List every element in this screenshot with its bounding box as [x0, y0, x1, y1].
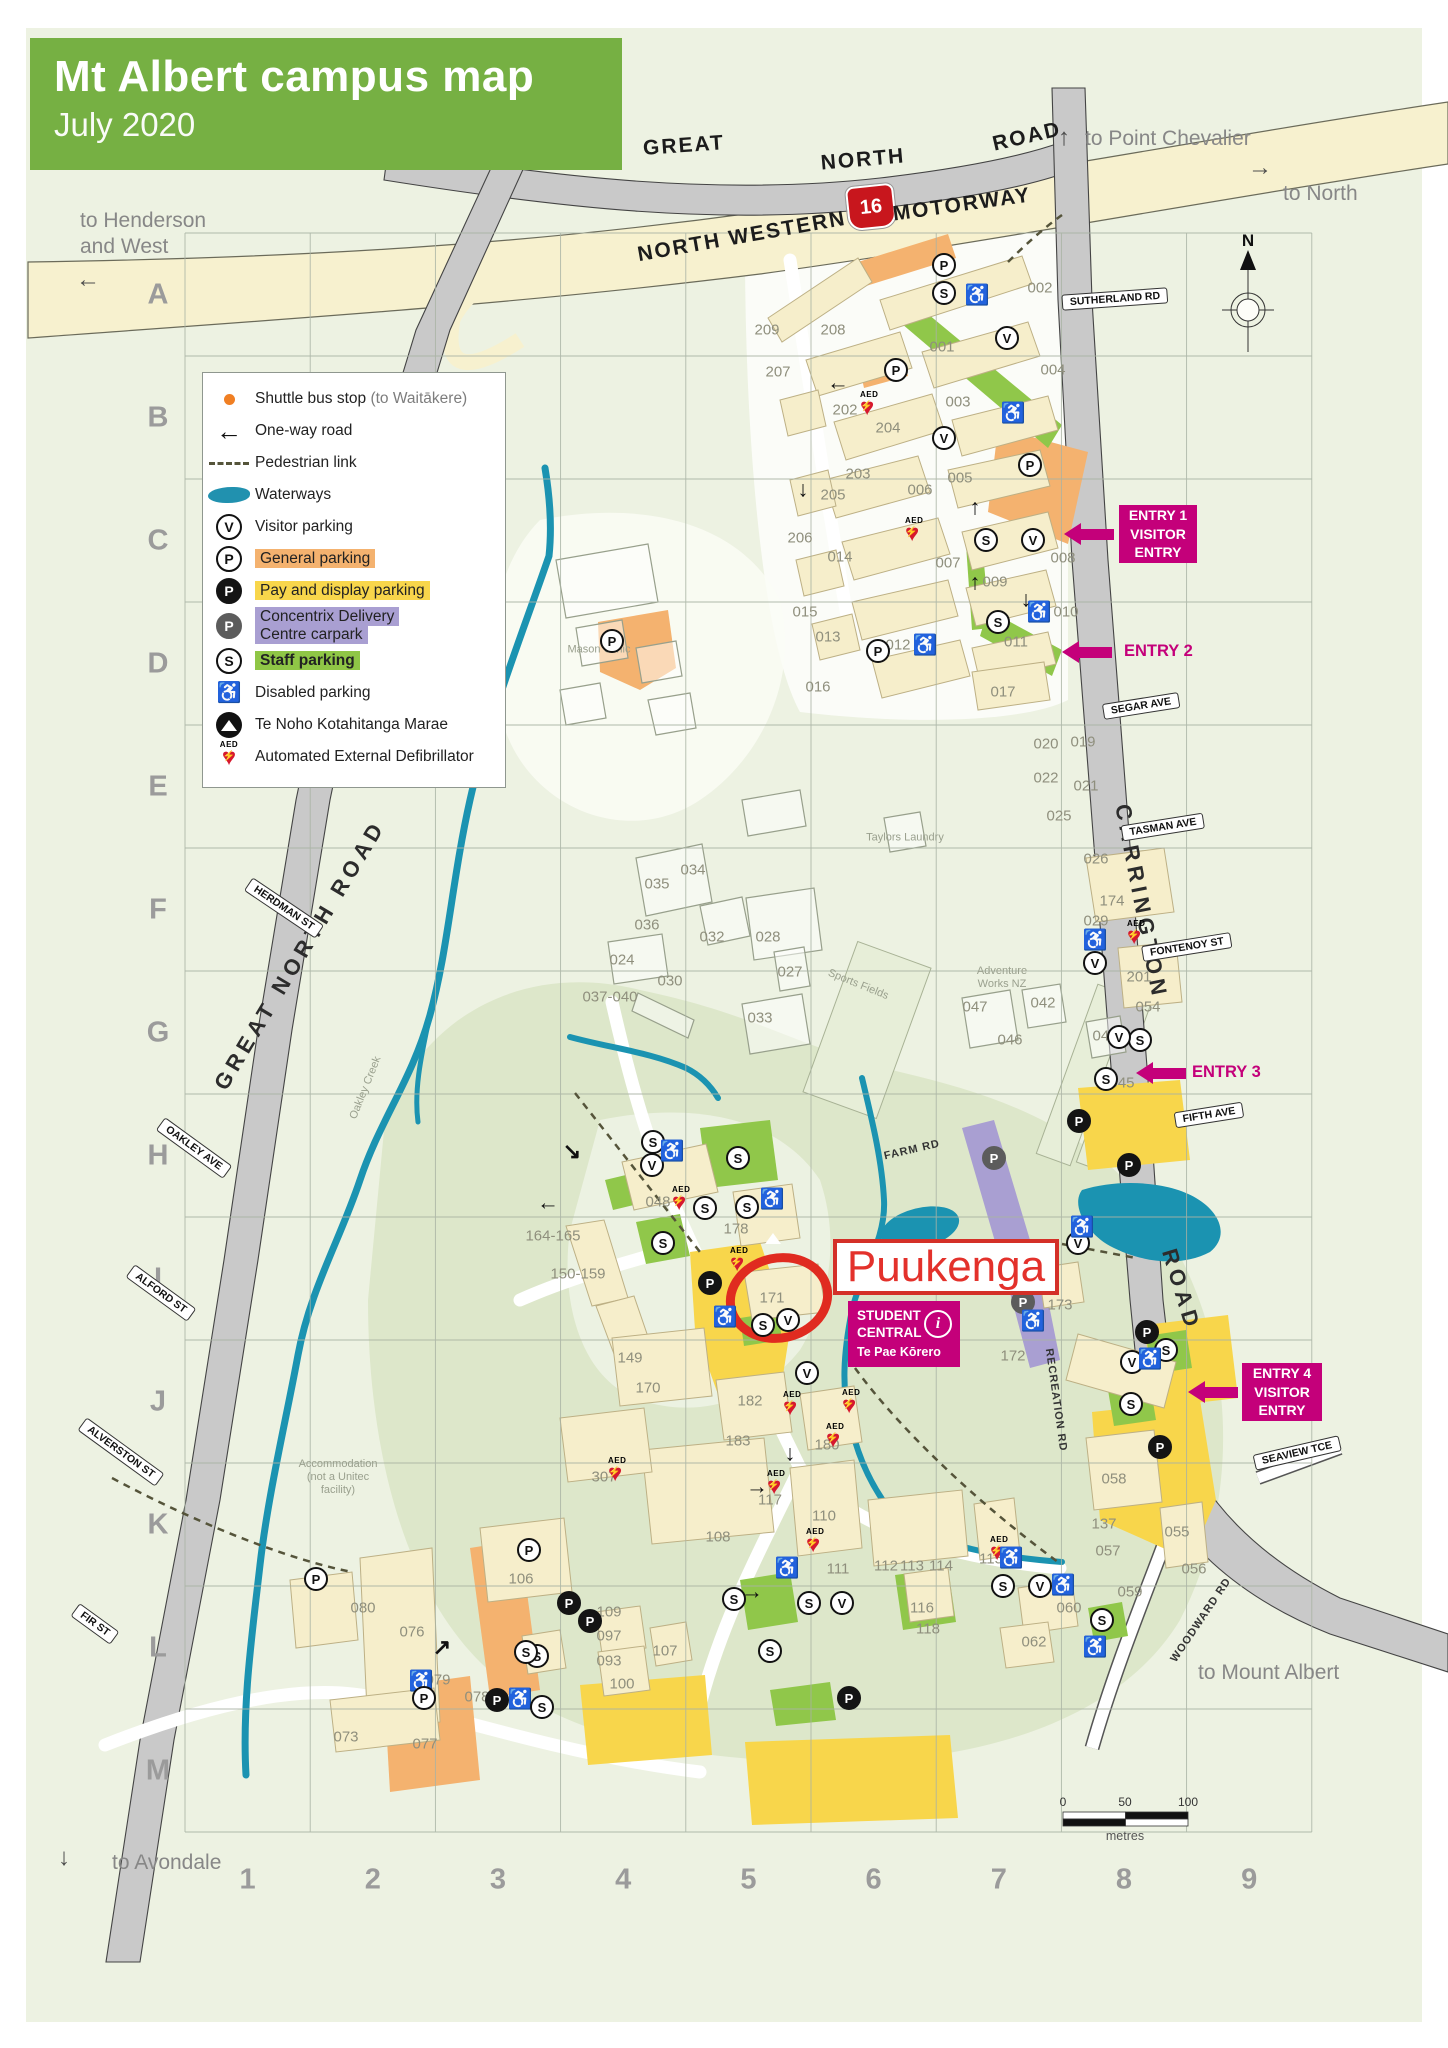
building-label: 002 [1027, 280, 1052, 297]
building-label: 110 [812, 1508, 836, 1525]
building-label: 017 [990, 684, 1015, 701]
v-icon: V [1083, 951, 1107, 975]
pb-icon: P [837, 1686, 861, 1710]
building-label: 008 [1050, 550, 1075, 567]
dis-icon: ♿ [1083, 1638, 1108, 1659]
building-label: 033 [747, 1010, 772, 1027]
v-icon: V [1028, 1574, 1052, 1598]
building-label: 030 [657, 973, 682, 990]
pb-icon: P [578, 1609, 602, 1633]
grid-col-label: 3 [490, 1864, 506, 1897]
direction-label: to North [1283, 181, 1358, 207]
pb-icon: P [837, 1686, 861, 1710]
dis-icon: ♿ [965, 285, 990, 307]
building-label: 073 [333, 1729, 358, 1746]
s-icon: S [216, 648, 242, 674]
legend-item-label: Visitor parking [255, 518, 353, 536]
v-icon: V [776, 1308, 800, 1332]
dis-icon: ♿ [1051, 1576, 1076, 1597]
building-label: 182 [737, 1393, 762, 1410]
p-icon: P [600, 629, 624, 653]
p-icon: P [517, 1538, 541, 1562]
s-icon: S [735, 1195, 759, 1219]
ped-icon [209, 462, 249, 465]
arr-icon: ↘ [563, 1141, 581, 1164]
direction-label: to Mount Albert [1198, 1660, 1339, 1686]
p-icon: P [866, 639, 890, 663]
compass-n: N [1242, 231, 1254, 250]
building-label: 024 [609, 952, 634, 969]
map-header: Mt Albert campus map July 2020 [30, 38, 622, 170]
building-label: 042 [1030, 995, 1055, 1012]
s-icon: S [514, 1640, 538, 1664]
p-icon: P [304, 1567, 328, 1591]
campus-map-page: N 0 50 100 metres Mt Albert campus map J… [0, 0, 1448, 2048]
s-icon: S [1128, 1028, 1152, 1052]
s-icon: S [514, 1640, 538, 1664]
water-icon [208, 487, 250, 503]
arr-icon: ← [537, 1192, 559, 1215]
legend-item: Te Noho Kotahitanga Marae [203, 709, 505, 741]
v-icon: V [1083, 951, 1107, 975]
building-label: 164-165 [525, 1228, 580, 1245]
s-icon: S [726, 1146, 750, 1170]
v-icon: V [995, 326, 1019, 350]
s-icon: S [1090, 1608, 1114, 1632]
dis-icon: ♿ [1070, 1218, 1095, 1239]
dis-icon: ♿ [760, 1189, 785, 1211]
dis-icon: ♿ [913, 635, 938, 657]
dis-icon: ♿ [508, 1689, 533, 1711]
building-label: 059 [1117, 1584, 1142, 1601]
v-icon: V [1028, 1574, 1052, 1598]
student-central-line3: Te Pae Kōrero [857, 1345, 960, 1359]
building-label: 035 [644, 876, 669, 893]
grid-row-label: J [150, 1385, 166, 1418]
direction-arrow-icon: ↓ [58, 1846, 70, 1870]
s-icon: S [932, 281, 956, 305]
v-icon: V [216, 514, 242, 540]
legend-item-label: Te Noho Kotahitanga Marae [255, 716, 448, 734]
arr-icon: ↑ [970, 497, 981, 520]
v-icon: V [795, 1361, 819, 1385]
grid-row-label: B [148, 401, 169, 434]
s-icon: S [726, 1146, 750, 1170]
building-label: 183 [725, 1433, 750, 1450]
building-label: 113 [900, 1558, 924, 1575]
dis-icon: ♿ [913, 636, 938, 657]
dis-icon: ♿ [775, 1558, 800, 1580]
building-label: 019 [1070, 734, 1095, 751]
building-label: 201 [1126, 969, 1151, 986]
building-label: 028 [755, 929, 780, 946]
p-icon: P [884, 358, 908, 382]
building-label: 015 [792, 604, 817, 621]
building-label: 093 [596, 1653, 621, 1670]
v-icon: V [1107, 1025, 1131, 1049]
dis-icon: ♿ [1021, 1312, 1046, 1333]
arr-icon: ↓ [785, 1443, 796, 1466]
building-label: 170 [635, 1380, 660, 1397]
direction-label: to Avondale [112, 1850, 221, 1876]
building-label: 150-159 [550, 1266, 605, 1283]
grid-row-label: M [146, 1754, 170, 1787]
grid-row-label: D [148, 647, 169, 680]
pb-icon: P [1067, 1109, 1091, 1133]
v-icon: V [1021, 528, 1045, 552]
pb-icon: P [1117, 1153, 1141, 1177]
direction-arrow-icon: ↑ [1058, 126, 1070, 150]
dis-icon: ♿ [1051, 1575, 1076, 1597]
s-icon: S [651, 1231, 675, 1255]
grid-row-label: K [148, 1508, 169, 1541]
legend-item-label: Automated External Defibrillator [255, 748, 474, 766]
p-icon: P [866, 639, 890, 663]
legend-item: ♿Disabled parking [203, 677, 505, 709]
building-label: 173 [1047, 1297, 1072, 1314]
s-icon: S [991, 1574, 1015, 1598]
dis-icon: ♿ [775, 1559, 800, 1580]
grid-col-label: 8 [1116, 1864, 1132, 1897]
arr-icon: ↗ [433, 1637, 451, 1660]
arr-icon: ↑ [970, 572, 981, 595]
building-label: 076 [399, 1624, 424, 1641]
s-icon: S [986, 610, 1010, 634]
compass-rose: N [1222, 231, 1274, 352]
s-icon: S [758, 1639, 782, 1663]
p-icon: P [1018, 453, 1042, 477]
building-label: 020 [1033, 736, 1058, 753]
legend-item: PConcentrix DeliveryCentre carpark [203, 607, 505, 645]
legend-item-label: Disabled parking [255, 684, 370, 702]
page-subtitle: July 2020 [54, 106, 622, 144]
dis-icon: ♿ [760, 1190, 785, 1211]
building-label: 013 [815, 629, 840, 646]
legend-item: VVisitor parking [203, 511, 505, 543]
legend-item: PPay and display parking [203, 575, 505, 607]
building-label: 077 [412, 1736, 437, 1753]
legend-item-label: One-way road [255, 422, 352, 440]
building-label: 062 [1021, 1634, 1046, 1651]
scale-bar: 0 50 100 metres [1060, 1795, 1199, 1843]
legend-item: Shuttle bus stop (to Waitākere) [203, 383, 505, 415]
dis-icon: ♿ [1070, 1217, 1095, 1239]
s-icon: S [530, 1695, 554, 1719]
motorway-16-shield: 16 [845, 183, 897, 232]
building-label: 171 [759, 1290, 784, 1307]
pb-icon: P [485, 1688, 509, 1712]
legend-item-label: Pay and display parking [255, 582, 430, 600]
area-note: Taylors Laundry [866, 831, 944, 844]
v-icon: V [1107, 1025, 1131, 1049]
building-label: 174 [1099, 893, 1124, 910]
grid-row-label: F [149, 893, 167, 926]
direction-arrow-icon: ← [76, 268, 100, 292]
building-label: 206 [787, 530, 812, 547]
building-label: 100 [609, 1676, 634, 1693]
s-icon: S [735, 1195, 759, 1219]
building-label: 022 [1033, 770, 1058, 787]
grid-row-label: H [148, 1139, 169, 1172]
area-note: AdventureWorks NZ [977, 965, 1027, 991]
p-icon: P [216, 546, 242, 572]
entry-box: ENTRY 1VISITORENTRY [1119, 505, 1197, 563]
building-label: 106 [508, 1571, 533, 1588]
building-label: 029 [1083, 913, 1108, 930]
building-label: 107 [652, 1643, 677, 1660]
v-icon: V [830, 1591, 854, 1615]
direction-arrow-icon: → [1248, 156, 1272, 180]
p-icon: P [1018, 453, 1042, 477]
dis-icon: ♿ [965, 286, 990, 307]
grid-col-label: 1 [240, 1864, 256, 1897]
map-artwork: N 0 50 100 metres [0, 0, 1448, 2048]
legend-item-label: Concentrix DeliveryCentre carpark [255, 608, 399, 644]
pb-icon: P [1148, 1435, 1172, 1459]
s-icon: S [1094, 1067, 1118, 1091]
building-label: 118 [916, 1621, 940, 1638]
building-label: 203 [845, 466, 870, 483]
arr-icon: → [746, 1476, 768, 1499]
building-label: 036 [634, 917, 659, 934]
building-label: 003 [945, 394, 970, 411]
pb-icon: P [1117, 1153, 1141, 1177]
grid-row-label: G [147, 1016, 170, 1049]
building-label: 011 [1004, 634, 1028, 651]
legend-item: SStaff parking [203, 645, 505, 677]
pb-icon: P [1148, 1435, 1172, 1459]
s-icon: S [1094, 1067, 1118, 1091]
pg-icon: P [982, 1146, 1006, 1170]
grid-col-label: 4 [615, 1864, 631, 1897]
grid-col-label: 6 [866, 1864, 882, 1897]
entry-label: ENTRY 2 [1124, 642, 1193, 661]
building-label: 032 [699, 929, 724, 946]
puukenga-callout: Puukenga [833, 1239, 1059, 1295]
building-label: 014 [827, 549, 852, 566]
building-label: 048 [645, 1194, 670, 1211]
svg-text:metres: metres [1106, 1829, 1144, 1843]
direction-label: to Point Chevalier [1085, 126, 1251, 152]
v-icon: V [932, 426, 956, 450]
arr-icon: ← [827, 372, 849, 395]
building-label: 116 [910, 1600, 934, 1617]
dis-icon: ♿ [660, 1141, 685, 1163]
legend-item-label: General parking [255, 550, 375, 568]
dis-icon: ♿ [1001, 403, 1026, 425]
building-label: 202 [832, 402, 857, 419]
s-icon: S [1119, 1392, 1143, 1416]
s-icon: S [751, 1313, 775, 1337]
dot-icon [224, 394, 235, 405]
dis-icon: ♿ [1083, 930, 1108, 952]
legend-item: Pedestrian link [203, 447, 505, 479]
building-label: 204 [875, 420, 900, 437]
oneway-icon: ← [216, 418, 242, 444]
dis-icon: ♿ [999, 1548, 1024, 1570]
dis-icon: ♿ [508, 1690, 533, 1711]
building-label: 111 [827, 1561, 850, 1578]
s-icon: S [986, 610, 1010, 634]
building-label: 010 [1053, 604, 1078, 621]
pb-icon: P [698, 1271, 722, 1295]
grid-row-label: A [148, 278, 169, 311]
building-label: 207 [765, 364, 790, 381]
building-label: 114 [929, 1558, 953, 1575]
p-icon: P [884, 358, 908, 382]
building-label: 009 [982, 574, 1007, 591]
building-label: 112 [874, 1558, 898, 1575]
building-label: 034 [680, 862, 705, 879]
entry-box: ENTRY 4VISITORENTRY [1242, 1363, 1322, 1421]
legend-item-label: Staff parking [255, 652, 360, 670]
p-icon: P [412, 1686, 436, 1710]
s-icon: S [1119, 1392, 1143, 1416]
legend-item-label: Shuttle bus stop (to Waitākere) [255, 390, 467, 408]
grid-col-label: 5 [740, 1864, 756, 1897]
v-icon: V [995, 326, 1019, 350]
building-label: 026 [1083, 851, 1108, 868]
building-label: 016 [805, 679, 830, 696]
grid-row-label: L [149, 1631, 167, 1664]
s-icon: S [797, 1591, 821, 1615]
legend-item: ←One-way road [203, 415, 505, 447]
marae-icon [216, 712, 242, 738]
p-icon: P [304, 1567, 328, 1591]
p-icon: P [517, 1538, 541, 1562]
building-label: 004 [1040, 362, 1065, 379]
area-note: Accommodation(not a Unitecfacility) [299, 1458, 378, 1498]
building-label: 021 [1073, 778, 1098, 795]
arr-icon: ↓ [1021, 589, 1032, 612]
dis-icon: ♿ [713, 1307, 738, 1329]
s-icon: S [530, 1695, 554, 1719]
v-icon: V [932, 426, 956, 450]
s-icon: S [693, 1196, 717, 1220]
entry-label: ENTRY 3 [1192, 1063, 1261, 1082]
building-label: 046 [997, 1032, 1022, 1049]
building-label: 056 [1181, 1561, 1206, 1578]
v-icon: V [830, 1591, 854, 1615]
s-icon: S [693, 1196, 717, 1220]
s-icon: S [974, 528, 998, 552]
pb-icon: P [578, 1609, 602, 1633]
svg-text:100: 100 [1178, 1795, 1198, 1809]
pb-icon: P [1067, 1109, 1091, 1133]
grid-col-label: 9 [1241, 1864, 1257, 1897]
building-label: 054 [1135, 999, 1160, 1016]
building-label: 209 [754, 322, 779, 339]
s-icon: S [1090, 1608, 1114, 1632]
building-label: 005 [947, 470, 972, 487]
direction-label: to Hendersonand West [80, 208, 206, 261]
dis-icon: ♿ [660, 1142, 685, 1163]
legend-item: PGeneral parking [203, 543, 505, 575]
dis-icon: ♿ [1138, 1350, 1163, 1371]
building-label: 027 [777, 964, 802, 981]
p-icon: P [412, 1686, 436, 1710]
grid-row-label: E [148, 770, 167, 803]
dis-icon: ♿ [1083, 931, 1108, 952]
building-label: 055 [1164, 1524, 1189, 1541]
information-icon: i [924, 1310, 952, 1338]
building-label: 060 [1056, 1600, 1081, 1617]
aed-icon: AED♥⚡ [216, 742, 242, 772]
pg-icon: P [216, 613, 242, 639]
s-icon: S [751, 1313, 775, 1337]
building-label: 149 [617, 1350, 642, 1367]
legend-item: AED♥⚡Automated External Defibrillator [203, 741, 505, 773]
s-icon: S [932, 281, 956, 305]
building-label: 001 [929, 339, 954, 356]
building-label: 037-040 [582, 989, 637, 1006]
building-label: 137 [1091, 1516, 1116, 1533]
building-label: 172 [1000, 1348, 1025, 1365]
v-icon: V [776, 1308, 800, 1332]
building-label: 108 [705, 1529, 730, 1546]
grid-col-label: 7 [991, 1864, 1007, 1897]
s-icon: S [1128, 1028, 1152, 1052]
svg-text:0: 0 [1060, 1795, 1067, 1809]
building-label: 006 [907, 482, 932, 499]
building-label: 058 [1101, 1471, 1126, 1488]
dis-icon: ♿ [217, 683, 242, 703]
dis-icon: ♿ [713, 1308, 738, 1329]
pb-icon: P [698, 1271, 722, 1295]
grid-col-label: 2 [365, 1864, 381, 1897]
pg-icon: P [982, 1146, 1006, 1170]
p-icon: P [932, 253, 956, 277]
svg-text:50: 50 [1118, 1795, 1132, 1809]
arr-icon: ↓ [798, 479, 809, 502]
dis-icon: ♿ [1138, 1349, 1163, 1371]
s-icon: S [722, 1587, 746, 1611]
s-icon: S [974, 528, 998, 552]
p-icon: P [600, 629, 624, 653]
s-icon: S [758, 1639, 782, 1663]
student-central-label: STUDENT CENTRAL Te Pae Kōrero i [848, 1301, 960, 1367]
building-label: 025 [1046, 808, 1071, 825]
building-label: 205 [820, 487, 845, 504]
v-icon: V [795, 1361, 819, 1385]
s-icon: S [722, 1587, 746, 1611]
pb-icon: P [485, 1688, 509, 1712]
v-icon: V [1021, 528, 1045, 552]
legend-item: Waterways [203, 479, 505, 511]
building-label: 047 [962, 999, 987, 1016]
grid-row-label: C [148, 524, 169, 557]
dis-icon: ♿ [1083, 1637, 1108, 1659]
building-label: 007 [935, 555, 960, 572]
legend-item-label: Waterways [255, 486, 331, 504]
building-label: 080 [350, 1600, 375, 1617]
s-icon: S [651, 1231, 675, 1255]
pb-icon: P [216, 578, 242, 604]
s-icon: S [797, 1591, 821, 1615]
legend-item-label: Pedestrian link [255, 454, 357, 472]
map-legend: Shuttle bus stop (to Waitākere)←One-way … [202, 372, 506, 788]
p-icon: P [932, 253, 956, 277]
building-label: 208 [820, 322, 845, 339]
page-title: Mt Albert campus map [54, 52, 622, 102]
building-label: 057 [1095, 1543, 1120, 1560]
dis-icon: ♿ [1021, 1311, 1046, 1333]
dis-icon: ♿ [1001, 404, 1026, 425]
dis-icon: ♿ [999, 1549, 1024, 1570]
s-icon: S [991, 1574, 1015, 1598]
building-label: 178 [723, 1221, 748, 1238]
